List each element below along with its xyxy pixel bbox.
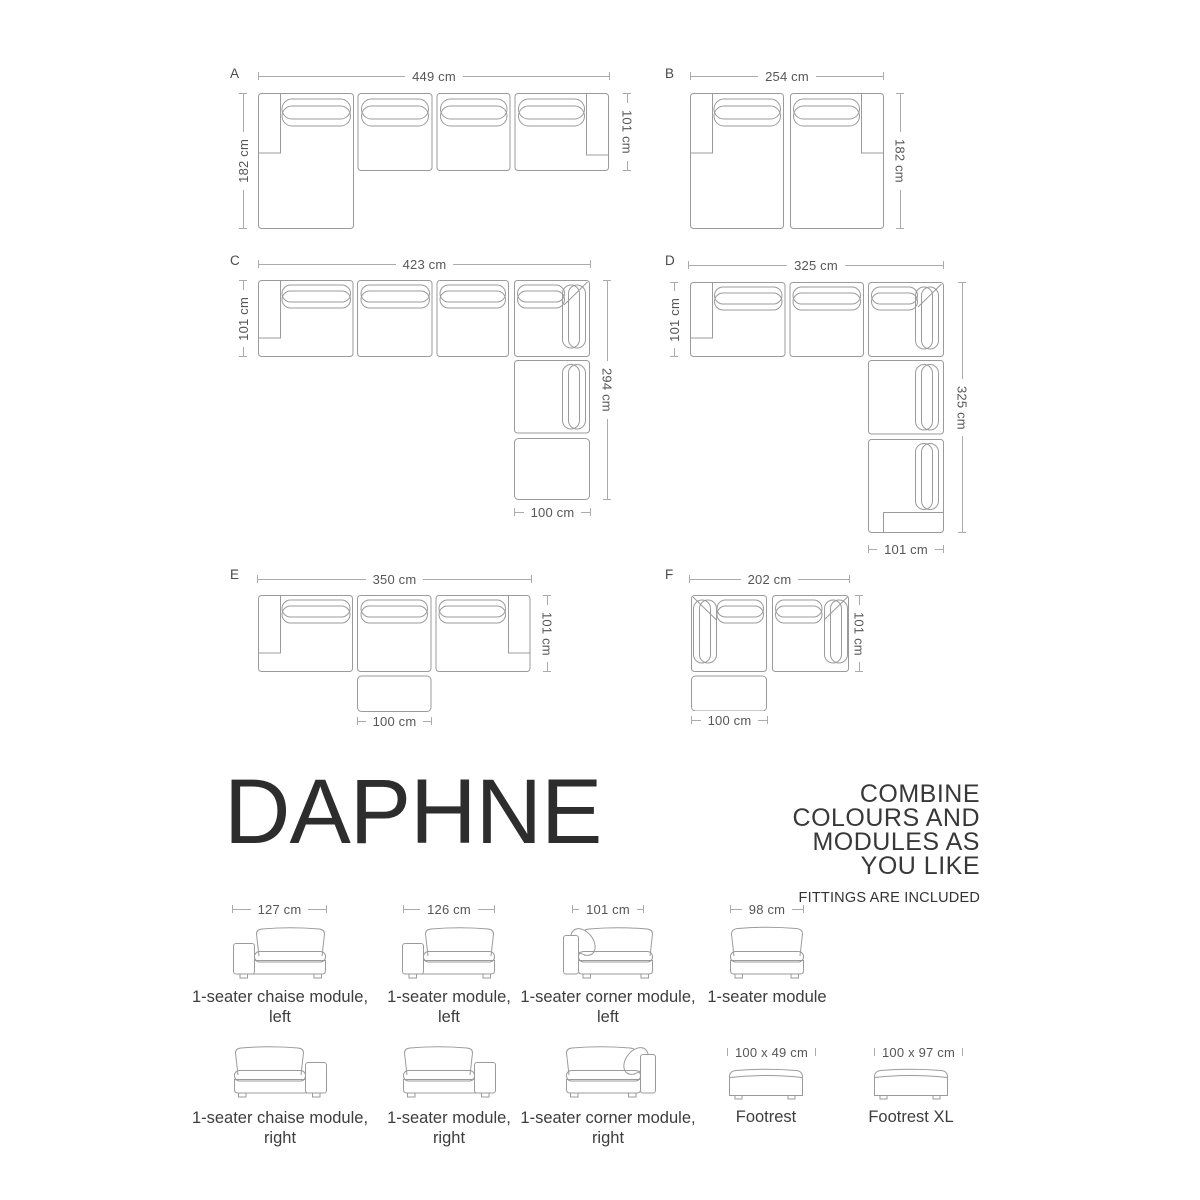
config-e-bottom-dimension: 100 cm bbox=[357, 714, 432, 728]
dim-line bbox=[423, 721, 431, 722]
dim-line bbox=[859, 596, 860, 605]
dim-tick bbox=[590, 508, 591, 516]
dim-line bbox=[233, 909, 251, 910]
dim-value: 294 cm bbox=[600, 361, 615, 419]
chaise-module-left bbox=[691, 94, 784, 229]
module-label-line: Footrest XL bbox=[816, 1107, 1006, 1127]
dim-tick bbox=[896, 228, 904, 229]
footrest-drawing bbox=[727, 1066, 805, 1102]
config-e-letter: E bbox=[230, 567, 239, 582]
module-3-dimension: 101 cm bbox=[572, 902, 644, 916]
dim-tick bbox=[543, 671, 551, 672]
dim-value: 101 cm bbox=[877, 542, 935, 557]
footrest-dimension: 100 x 49 cm bbox=[727, 1045, 805, 1059]
config-a-letter: A bbox=[230, 66, 239, 81]
config-f-letter: F bbox=[665, 567, 673, 582]
seat-module-left-arm bbox=[259, 281, 354, 357]
dim-line bbox=[627, 161, 628, 170]
config-b-right-dimension: 182 cm bbox=[893, 93, 907, 229]
config-f-bottom-dimension: 100 cm bbox=[691, 713, 768, 727]
dim-tick bbox=[326, 905, 327, 913]
module-4-dimension: 98 cm bbox=[730, 902, 804, 916]
dim-tick bbox=[803, 905, 804, 913]
module-label-line: left bbox=[513, 1007, 703, 1027]
seat-module-left-arm bbox=[691, 283, 786, 357]
tagline-line: COLOURS AND bbox=[680, 806, 980, 830]
dim-line bbox=[674, 283, 675, 291]
dim-tick bbox=[670, 356, 678, 357]
footrest-xl-dimension: 100 x 97 cm bbox=[874, 1045, 948, 1059]
dim-line bbox=[243, 281, 244, 290]
vertical-seat-module-bottom-arm bbox=[869, 440, 944, 533]
module-chaise-right-drawing bbox=[231, 1040, 327, 1102]
dim-value: 101 cm bbox=[620, 103, 635, 161]
config-d-drawing bbox=[688, 282, 944, 533]
config-d-right-dimension: 325 cm bbox=[955, 282, 969, 533]
dim-tick bbox=[643, 905, 644, 913]
dim-line bbox=[859, 662, 860, 671]
config-c-letter: C bbox=[230, 253, 240, 268]
dim-line bbox=[259, 264, 396, 265]
config-c-left-dimension: 101 cm bbox=[236, 280, 250, 357]
dim-line bbox=[792, 909, 803, 910]
module-chaise-left-drawing bbox=[233, 921, 329, 983]
dim-line bbox=[463, 76, 609, 77]
config-b-drawing bbox=[690, 93, 884, 229]
seat-module bbox=[358, 94, 432, 171]
config-a-drawing bbox=[258, 93, 610, 229]
config-a-right-dimension: 101 cm bbox=[620, 93, 634, 171]
config-d-width-dimension: 325 cm bbox=[688, 258, 944, 272]
corner-module-left bbox=[692, 596, 767, 672]
vertical-seat-module bbox=[869, 361, 944, 435]
corner-module bbox=[869, 283, 944, 357]
config-f-width-dimension: 202 cm bbox=[689, 572, 850, 586]
config-e-width-dimension: 350 cm bbox=[257, 572, 532, 586]
dim-line bbox=[607, 419, 608, 499]
config-d-bottom-dimension: 101 cm bbox=[868, 542, 944, 556]
dim-value: 202 cm bbox=[741, 572, 799, 587]
dim-line bbox=[404, 909, 420, 910]
dim-line bbox=[900, 94, 901, 132]
dim-line bbox=[358, 721, 366, 722]
config-b-letter: B bbox=[665, 66, 674, 81]
module-label-line: right bbox=[513, 1128, 703, 1148]
tagline-line: MODULES AS bbox=[680, 830, 980, 854]
dim-tick bbox=[431, 717, 432, 725]
dim-value: 126 cm bbox=[420, 902, 478, 917]
dim-value: 101 cm bbox=[579, 902, 637, 917]
config-e-drawing bbox=[257, 595, 531, 712]
dim-tick bbox=[849, 575, 850, 583]
tagline: COMBINE COLOURS AND MODULES AS YOU LIKE … bbox=[680, 782, 980, 910]
dim-value: 449 cm bbox=[405, 69, 463, 84]
config-c-right-dimension: 294 cm bbox=[600, 280, 614, 500]
dim-tick bbox=[855, 671, 863, 672]
dim-line bbox=[258, 579, 366, 580]
module-seater-left-drawing bbox=[402, 921, 498, 983]
dim-value: 325 cm bbox=[787, 258, 845, 273]
dim-line bbox=[547, 596, 548, 605]
dim-value: 101 cm bbox=[852, 605, 867, 663]
footrest-module bbox=[692, 676, 767, 711]
dim-line bbox=[816, 76, 883, 77]
dim-line bbox=[243, 94, 244, 132]
dim-tick bbox=[531, 575, 532, 583]
dim-value: 101 cm bbox=[236, 290, 251, 348]
dim-tick bbox=[815, 1048, 816, 1056]
corner-module-right bbox=[773, 596, 849, 672]
module-label-line: 1-seater chaise module, bbox=[185, 987, 375, 1007]
dim-line bbox=[581, 512, 590, 513]
config-c-drawing bbox=[258, 280, 591, 500]
module-1-label: 1-seater chaise module, left bbox=[185, 987, 375, 1027]
dim-line bbox=[423, 579, 531, 580]
seat-module bbox=[437, 94, 510, 171]
dim-line bbox=[962, 436, 963, 532]
dim-value: 254 cm bbox=[758, 69, 816, 84]
product-title: DAPHNE bbox=[224, 766, 601, 858]
module-label-line: 1-seater module bbox=[672, 987, 862, 1007]
vertical-seat-module bbox=[515, 361, 590, 434]
module-seater-right-drawing bbox=[400, 1040, 496, 1102]
config-d-letter: D bbox=[665, 253, 675, 268]
dim-line bbox=[453, 264, 590, 265]
dim-tick bbox=[239, 228, 247, 229]
config-c-bottom-dimension: 100 cm bbox=[514, 505, 591, 519]
dim-line bbox=[869, 549, 877, 550]
seat-module-right-arm bbox=[436, 596, 530, 672]
dim-line bbox=[900, 190, 901, 228]
dim-tick bbox=[958, 532, 966, 533]
tagline-line: COMBINE bbox=[680, 782, 980, 806]
dim-tick bbox=[623, 170, 631, 171]
fittings-note: FITTINGS ARE INCLUDED bbox=[680, 886, 980, 910]
config-c-width-dimension: 423 cm bbox=[258, 257, 591, 271]
dim-tick bbox=[239, 356, 247, 357]
module-2-dimension: 126 cm bbox=[403, 902, 495, 916]
dim-value: 182 cm bbox=[893, 132, 908, 190]
dim-tick bbox=[603, 499, 611, 500]
dim-value: 423 cm bbox=[396, 257, 454, 272]
dim-tick bbox=[767, 716, 768, 724]
dim-value: 127 cm bbox=[251, 902, 309, 917]
chaise-module-left bbox=[259, 94, 354, 229]
corner-module bbox=[515, 281, 590, 357]
dim-line bbox=[935, 549, 943, 550]
dim-line bbox=[962, 283, 963, 379]
dim-line bbox=[478, 909, 494, 910]
dim-value: 100 x 97 cm bbox=[875, 1045, 962, 1060]
module-5-label: 1-seater chaise module, right bbox=[185, 1108, 375, 1148]
dim-value: 101 cm bbox=[540, 605, 555, 663]
module-1-dimension: 127 cm bbox=[232, 902, 327, 916]
dim-line bbox=[692, 720, 701, 721]
dim-tick bbox=[609, 72, 610, 80]
dim-tick bbox=[943, 261, 944, 269]
dim-value: 350 cm bbox=[366, 572, 424, 587]
config-b-width-dimension: 254 cm bbox=[690, 69, 884, 83]
module-label-line: right bbox=[185, 1128, 375, 1148]
dim-line bbox=[758, 720, 767, 721]
dim-line bbox=[515, 512, 524, 513]
dim-value: 325 cm bbox=[955, 379, 970, 437]
module-4-label: 1-seater module bbox=[672, 987, 862, 1007]
dim-line bbox=[674, 348, 675, 356]
dim-value: 100 cm bbox=[366, 714, 424, 729]
module-seater-armless-drawing bbox=[728, 921, 806, 983]
dim-line bbox=[308, 909, 326, 910]
dim-value: 182 cm bbox=[236, 132, 251, 190]
dim-value: 100 cm bbox=[524, 505, 582, 520]
dim-value: 100 x 49 cm bbox=[728, 1045, 815, 1060]
seat-module bbox=[790, 283, 864, 357]
dim-line bbox=[691, 76, 758, 77]
dim-line bbox=[845, 265, 943, 266]
chaise-module-right bbox=[791, 94, 884, 229]
module-corner-right-drawing bbox=[560, 1040, 656, 1102]
footrest-xl-drawing bbox=[872, 1066, 950, 1102]
dim-tick bbox=[962, 1048, 963, 1056]
module-9-label: Footrest XL bbox=[816, 1107, 1006, 1127]
config-f-drawing bbox=[689, 595, 850, 711]
dim-tick bbox=[943, 545, 944, 553]
dim-line bbox=[731, 909, 742, 910]
dim-line bbox=[243, 190, 244, 228]
dim-value: 101 cm bbox=[667, 291, 682, 349]
module-label-line: left bbox=[185, 1007, 375, 1027]
dim-line bbox=[798, 579, 849, 580]
dim-line bbox=[690, 579, 741, 580]
dim-line bbox=[689, 265, 787, 266]
module-label-line: 1-seater chaise module, bbox=[185, 1108, 375, 1128]
dim-value: 100 cm bbox=[701, 713, 759, 728]
seat-module-right-arm bbox=[515, 94, 609, 171]
seat-module-left-arm bbox=[259, 596, 353, 672]
footrest-module bbox=[358, 676, 432, 712]
dim-tick bbox=[590, 260, 591, 268]
config-d-left-dimension: 101 cm bbox=[667, 282, 681, 357]
dim-line bbox=[547, 662, 548, 671]
config-a-left-dimension: 182 cm bbox=[236, 93, 250, 229]
dim-tick bbox=[494, 905, 495, 913]
dim-line bbox=[607, 281, 608, 361]
config-f-right-dimension: 101 cm bbox=[852, 595, 866, 672]
tagline-line: YOU LIKE bbox=[680, 854, 980, 878]
dim-line bbox=[627, 94, 628, 103]
dim-line bbox=[259, 76, 405, 77]
module-corner-left-drawing bbox=[563, 921, 659, 983]
dim-line bbox=[243, 347, 244, 356]
dim-value: 98 cm bbox=[742, 902, 792, 917]
config-e-right-dimension: 101 cm bbox=[540, 595, 554, 672]
dim-tick bbox=[883, 72, 884, 80]
seat-module bbox=[358, 281, 433, 357]
footrest-module bbox=[515, 439, 590, 500]
config-a-width-dimension: 449 cm bbox=[258, 69, 610, 83]
seat-module bbox=[358, 596, 432, 672]
seat-module bbox=[437, 281, 509, 357]
